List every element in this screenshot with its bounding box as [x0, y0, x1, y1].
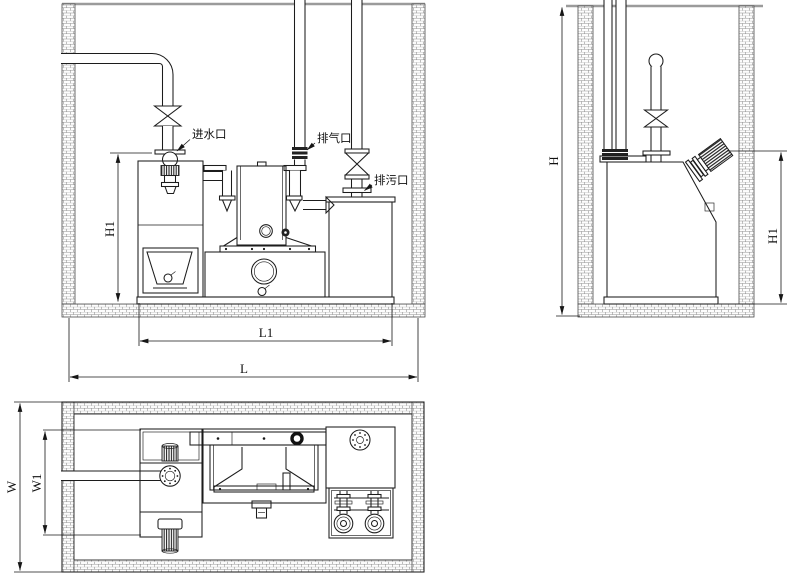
dim-label-w: W: [4, 480, 19, 493]
tank-side: [600, 137, 734, 304]
reducer-arrow: [326, 197, 334, 213]
interconnect-piping: [203, 166, 334, 214]
pit-floor-side: [578, 304, 754, 317]
plan-view: W W1: [4, 402, 424, 572]
inlet-ball-joint: [163, 152, 178, 167]
inlet-valve: [155, 106, 182, 126]
pit-wall-left: [62, 4, 75, 304]
label-inlet: 进水口: [192, 128, 227, 141]
label-air-outlet: 排气口: [317, 131, 352, 145]
basket-window: [143, 248, 198, 293]
basket-drain-port: [164, 274, 172, 282]
side-view: H H1: [546, 0, 787, 317]
base-skid-side: [604, 297, 718, 304]
dim-label-h1-front: H1: [102, 221, 117, 237]
hopper-rim-plan: [210, 445, 318, 490]
pit-floor: [62, 304, 425, 317]
pit-structure-front: [62, 4, 425, 317]
drain-stub-plan: [158, 519, 182, 553]
drain-valve: [346, 153, 369, 175]
pit-wall-left-side: [578, 6, 593, 304]
drain-pipe: [343, 0, 371, 197]
pit-wall-right: [412, 4, 425, 304]
bottom-fitting-plan: [252, 501, 271, 508]
pit-wall-right-side: [739, 6, 754, 304]
grinder-motor: [686, 137, 734, 181]
center-compartment-plan: [190, 429, 326, 518]
dimension-plan-w1: W1: [29, 430, 141, 535]
side-valve: [645, 110, 668, 127]
pump-1-plan: [334, 491, 353, 533]
pump-2-plan: [365, 491, 384, 533]
front-view: H1 L1 L 进水口 排气口 排污口: [61, 0, 425, 382]
vent-pipe: [292, 0, 308, 166]
drawing-canvas: H1 L1 L 进水口 排气口 排污口: [0, 0, 810, 583]
basket-hopper: [147, 252, 192, 284]
dim-label-h: H: [546, 156, 561, 165]
inlet-flange-plan: [160, 466, 180, 486]
right-tank: [326, 197, 395, 297]
inlet-pipe-plan: [61, 471, 161, 481]
dimension-side-h: H: [546, 8, 580, 317]
base-skid: [137, 297, 394, 304]
flange-ring: [220, 246, 316, 252]
dim-label-l: L: [240, 361, 248, 376]
riser-pipes-side: [602, 0, 670, 162]
dim-label-h1-side: H1: [765, 228, 780, 244]
housing-drain: [258, 288, 266, 296]
pipe-section-plan: [292, 434, 302, 444]
inlet-pipe: [61, 54, 185, 194]
dim-label-w1: W1: [29, 474, 44, 493]
right-compartment-plan: [326, 427, 395, 538]
dim-label-l1: L1: [259, 325, 273, 340]
outlet-flange-plan: [350, 430, 370, 450]
manhole-port: [252, 259, 277, 284]
dimension-front-h1: H1: [102, 153, 152, 302]
hopper-slopes-plan: [214, 447, 314, 487]
top-channel-plan: [190, 432, 326, 445]
left-compartment-plan: [140, 429, 202, 553]
technical-drawing-page: H1 L1 L 进水口 排气口 排污口: [0, 0, 810, 583]
vent-cap: [649, 54, 663, 68]
label-drain-outlet: 排污口: [374, 173, 409, 187]
dimension-front-l: L: [69, 318, 418, 382]
